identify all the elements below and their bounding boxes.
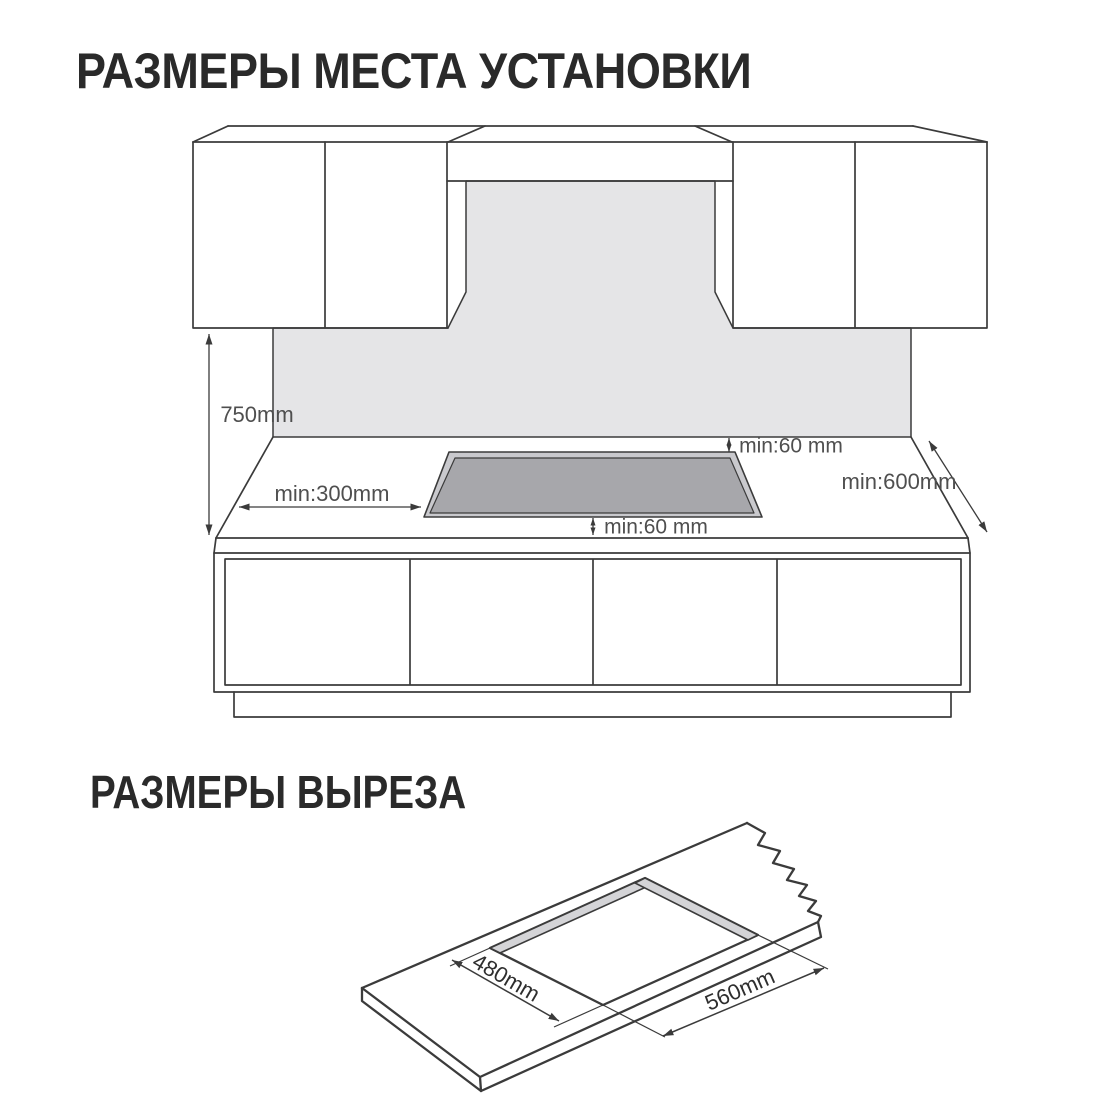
- right-cabinet: [733, 142, 987, 328]
- dim-label-min300mm: min:300mm: [275, 483, 390, 505]
- worktop-slab: [362, 823, 821, 1091]
- diagram-lineart: [0, 0, 1120, 1120]
- cooktop-surface: [430, 458, 754, 513]
- installation-diagram: [193, 126, 987, 717]
- torn-edge: [747, 823, 821, 922]
- cutout-wall-left: [490, 878, 655, 953]
- dim-label-min60mm-front: min:60 mm: [604, 517, 708, 538]
- cooktop: [424, 452, 762, 517]
- dim-label-min60mm-rear: min:60 mm: [739, 436, 843, 457]
- cooker-hood: [447, 126, 733, 181]
- base-cabinet-doors: [225, 559, 961, 685]
- backsplash-wall: [273, 181, 911, 437]
- installation-title: РАЗМЕРЫ МЕСТА УСТАНОВКИ: [76, 46, 751, 96]
- page: РАЗМЕРЫ МЕСТА УСТАНОВКИ РАЗМЕРЫ ВЫРЕЗА 7…: [0, 0, 1120, 1120]
- plinth: [234, 692, 951, 717]
- base-cabinet: [214, 553, 970, 717]
- cutout-diagram: [362, 823, 828, 1091]
- dim-label-750mm: 750mm: [220, 404, 293, 426]
- left-cabinet: [193, 142, 448, 328]
- cutout-wall-right: [635, 878, 758, 940]
- dim-label-min600mm: min:600mm: [842, 471, 957, 493]
- cutout-title: РАЗМЕРЫ ВЫРЕЗА: [90, 769, 466, 815]
